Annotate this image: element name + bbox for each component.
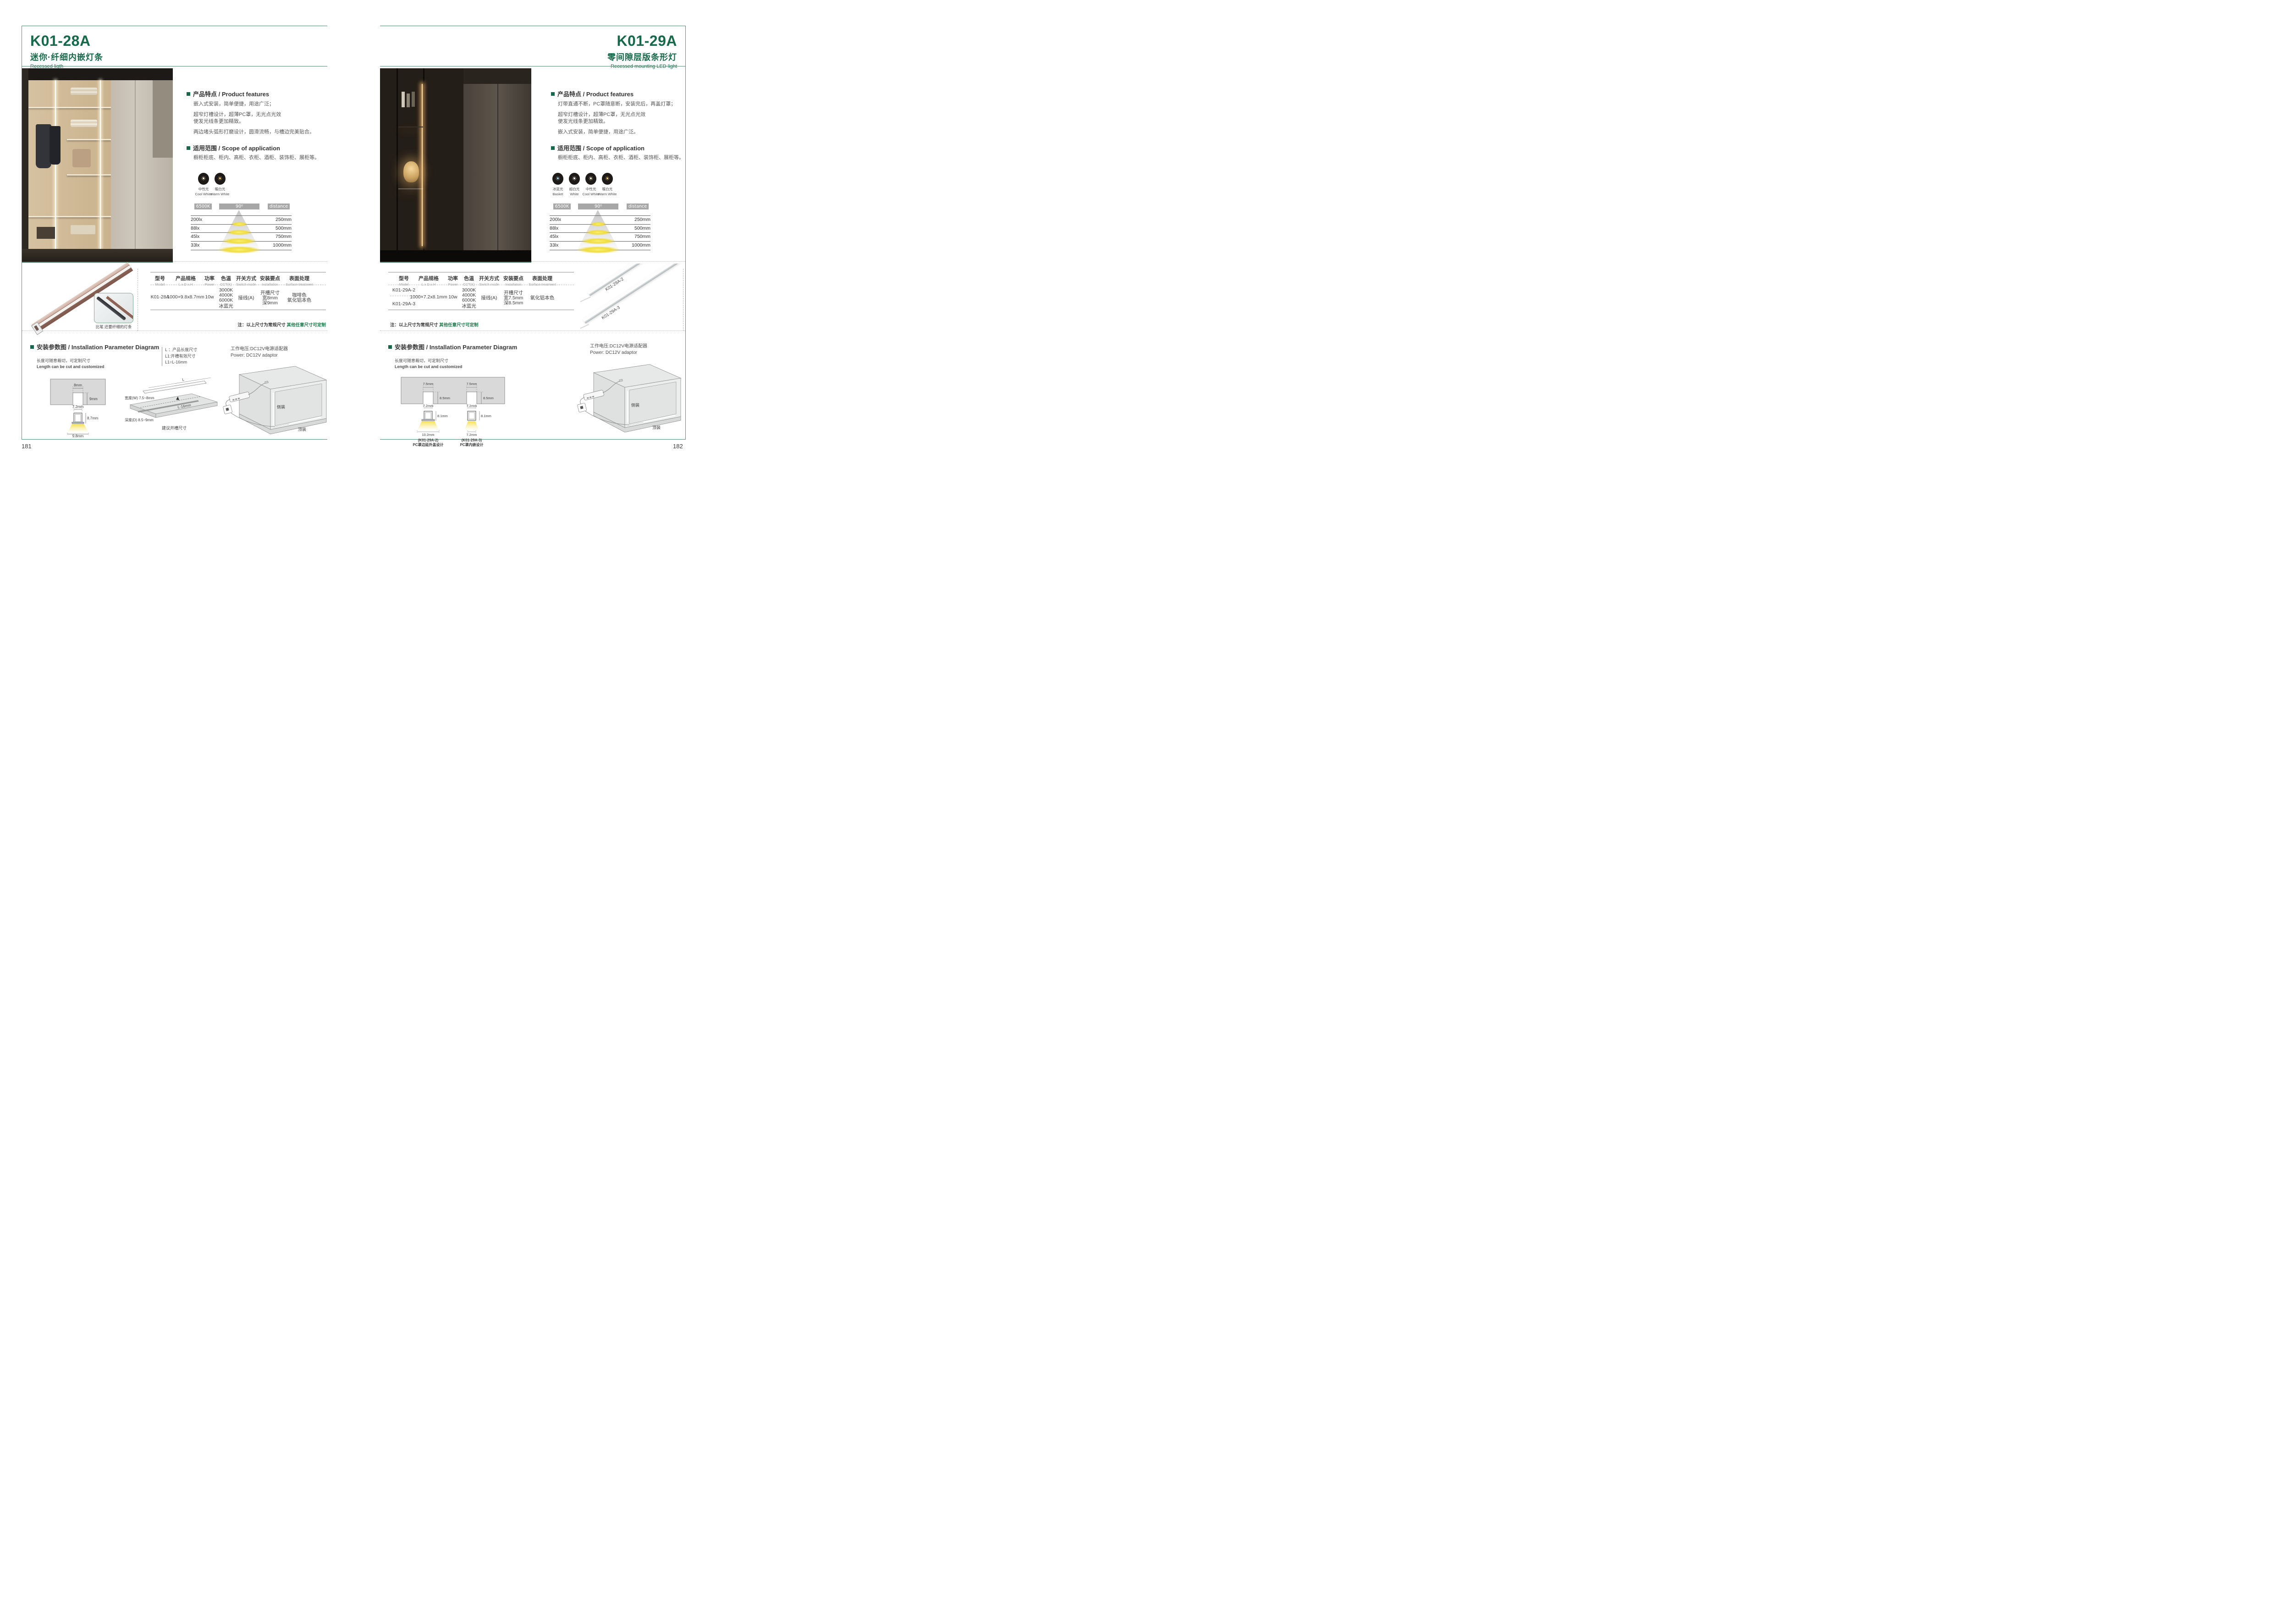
dashed-divider [138, 269, 138, 331]
feature-line: 使发光线条更加精致。 [193, 118, 244, 125]
page-number: 181 [22, 443, 32, 450]
lux-value: 45lx [550, 234, 558, 239]
svg-text:顶装: 顶装 [298, 427, 306, 432]
svg-text:顶装: 顶装 [652, 425, 661, 430]
cell-size: 1000×9.8x8.7mm [167, 294, 204, 300]
cct-bar: 6500K [553, 204, 571, 209]
storage-box [37, 227, 55, 239]
feature-line: 两边堵头弧形打磨设计，圆滑流畅，与槽边完美贴合。 [193, 129, 314, 136]
catalog-spread: K01-28A 迷你·纤细内嵌灯条 Recessed ligth [0, 0, 707, 461]
svg-text:L: L [182, 377, 185, 382]
led-strip-glow [422, 84, 423, 246]
product-subtitle-cn: 零间隙层版条形灯 [607, 51, 677, 63]
cell-model: K01-29A-2 [392, 287, 415, 293]
panel-seam [497, 68, 498, 262]
square-bullet-icon [551, 146, 555, 150]
length-note-en: Length can be cut and customized [37, 364, 105, 370]
cell-power: 10w [205, 294, 214, 300]
svg-text:建议开槽尺寸: 建议开槽尺寸 [162, 425, 187, 430]
dashed-divider [683, 269, 683, 331]
hanging-coat [50, 126, 61, 165]
svg-text:7.2mm: 7.2mm [467, 404, 477, 408]
folded-textile [71, 225, 95, 234]
svg-text:9.8mm: 9.8mm [72, 434, 84, 438]
svg-text:10.2mm: 10.2mm [422, 433, 434, 437]
lux-value: 200lx [191, 217, 202, 222]
cross-section-diagram-double: 7.5mm 8.5mm 7.2mm 8.1mm 10.2mm (K01-29A-… [396, 371, 510, 449]
svg-text:7.2mm: 7.2mm [72, 405, 84, 409]
photo-open-shelving [380, 68, 463, 262]
power-note-cn: 工作电压:DC12V电源适配器 [231, 346, 288, 353]
sun-icon: ☀ [605, 176, 610, 182]
groove-board-diagram: L L-16mm 宽度(W) 7.5~8mm 深度(D) 8.5~9mm 建议开… [124, 375, 225, 437]
shelf [28, 216, 111, 217]
power-note-cn: 工作电压:DC12V电源适配器 [590, 343, 647, 350]
photo-floor [22, 249, 173, 262]
svg-text:深度(D) 8.5~9mm: 深度(D) 8.5~9mm [125, 418, 154, 422]
light-distribution-chart: 6500K 90⁰ distance 200lx 88lx 45lx 33lx … [190, 204, 292, 258]
strip-wire [580, 297, 591, 303]
table-bottom-rule [150, 309, 326, 310]
product-photo-wardrobe [22, 68, 173, 263]
light-color-icon: ☀ [215, 173, 226, 185]
cell-surface: 氧化铝本色 [287, 297, 312, 303]
light-color-label: 暖白光Warm White [596, 187, 618, 197]
custom-size-note: 注：以上尺寸为常规尺寸 其他任意尺寸可定制 [237, 321, 326, 328]
scope-heading: 适用范围 / Scope of application [551, 143, 645, 152]
cct-bar: 6500K [194, 204, 212, 209]
light-pool [590, 222, 606, 226]
svg-text:8.5mm: 8.5mm [440, 396, 450, 400]
svg-text:8.1mm: 8.1mm [437, 414, 448, 418]
light-pool [585, 230, 611, 235]
photo-closed-panels [463, 68, 532, 262]
light-pool [222, 238, 257, 244]
lux-value: 88lx [550, 226, 558, 231]
svg-text:(K01-29A-3): (K01-29A-3) [462, 438, 482, 442]
hanging-suit [36, 124, 51, 168]
spec-table: 型号Model 产品规格L x D x H 功率Power 色温CCT(K) 开… [388, 270, 574, 334]
distance-value: 750mm [634, 234, 650, 239]
distance-value: 1000mm [632, 242, 650, 248]
sun-icon: ☀ [201, 176, 206, 182]
cell-install: 深9mm [262, 299, 278, 306]
chart-line [191, 215, 292, 216]
square-bullet-icon [388, 345, 392, 349]
svg-text:7.2mm: 7.2mm [467, 433, 477, 437]
cell-power: 10w [448, 294, 457, 300]
cabinet-mount-diagram: 侧装 顶装 [576, 355, 686, 437]
table-header-rule [388, 285, 574, 285]
scope-heading: 适用范围 / Scope of application [187, 143, 280, 152]
lux-value: 45lx [191, 234, 199, 239]
cell-switch: 接线(A) [481, 294, 497, 301]
distance-value: 250mm [634, 217, 650, 222]
installation-heading: 安装参数图 / Installation Parameter Diagram [388, 342, 517, 351]
scope-text: 橱柜柜底、柜内、高柜、衣柜、酒柜、装饰柜、展柜等。 [558, 154, 684, 161]
pen-comparison-inset [94, 293, 133, 323]
svg-text:8.7mm: 8.7mm [87, 416, 99, 420]
book [402, 92, 405, 107]
page-k01-28a: K01-28A 迷你·纤细内嵌灯条 Recessed ligth [22, 26, 327, 440]
product-code: K01-29A [607, 33, 677, 48]
top-band [463, 68, 532, 84]
light-color-icon: ☀ [198, 173, 209, 185]
cabinet-mount-diagram: 侧装 顶装 [222, 357, 332, 439]
cell-cct: 冰蓝光 [462, 303, 476, 309]
book [407, 94, 410, 107]
photo-floor [380, 250, 531, 262]
cell-model: K01-29A-3 [392, 301, 415, 307]
svg-text:8mm: 8mm [74, 383, 82, 387]
square-bullet-icon [187, 146, 190, 150]
section-divider-dotted [531, 261, 685, 262]
square-bullet-icon [30, 345, 34, 349]
lux-value: 200lx [550, 217, 561, 222]
features-heading: 产品特点 / Product features [551, 89, 634, 98]
light-color-label: 暖白光Warm White [209, 187, 231, 197]
feature-line: 灯带直通不断，PC罩随意断，安装完后，再盖灯罩； [558, 101, 676, 108]
table-top-rule [388, 272, 574, 273]
spec-table: 型号Model 产品规格L x D x H 功率Power 色温CCT(K) 开… [150, 270, 326, 334]
book [412, 92, 415, 107]
cell-surface: 氧化铝本色 [530, 294, 555, 301]
cell-cct: 冰蓝光 [219, 303, 233, 309]
features-heading: 产品特点 / Product features [187, 89, 269, 98]
svg-text:(K01-29A-2): (K01-29A-2) [418, 438, 439, 442]
distance-value: 500mm [634, 226, 650, 231]
section-divider-dotted [380, 330, 685, 331]
light-pool [218, 246, 261, 253]
svg-text:7.5mm: 7.5mm [467, 382, 477, 386]
page-header: K01-28A 迷你·纤细内嵌灯条 Recessed ligth [30, 33, 103, 69]
chart-line [550, 215, 650, 216]
cell-size: 1000×7.2x8.1mm [410, 294, 447, 300]
distance-bar: distance [268, 204, 290, 209]
page-header: K01-29A 零间隙层版条形灯 Recessed mounting LED l… [607, 33, 677, 69]
length-note-cn: 长度可随意裁切，可定制尺寸 [395, 358, 448, 364]
divider [397, 68, 398, 262]
beam-angle-bar: 90⁰ [578, 204, 618, 209]
table-bottom-rule [388, 309, 574, 310]
square-bullet-icon [187, 92, 190, 96]
page-k01-29a: K01-29A 零间隙层版条形灯 Recessed mounting LED l… [380, 26, 686, 440]
svg-text:PC罩边延外盖设计: PC罩边延外盖设计 [413, 442, 443, 447]
led-strip-glow [55, 80, 56, 249]
svg-text:8.1mm: 8.1mm [481, 414, 491, 418]
distance-value: 500mm [275, 226, 292, 231]
square-bullet-icon [551, 92, 555, 96]
cross-section-diagram: 8mm 9mm 7.2mm 8.7mm 9.8mm [40, 373, 116, 438]
product-photo-cabinet [380, 68, 531, 263]
scope-text: 橱柜柜底、柜内、高柜、衣柜、酒柜、装饰柜、展柜等。 [193, 154, 320, 161]
svg-text:7.2mm: 7.2mm [423, 404, 434, 408]
light-distribution-chart: 6500K 90⁰ distance 200lx 88lx 45lx 33lx … [549, 204, 651, 258]
led-strip-glow [100, 80, 101, 249]
table-top-rule [150, 272, 326, 273]
divider [423, 68, 424, 262]
svg-text:宽度(W) 7.5~8mm: 宽度(W) 7.5~8mm [125, 396, 154, 400]
light-pool [577, 246, 620, 253]
light-color-icon: ☀ [569, 173, 580, 185]
header-divider [22, 66, 327, 66]
sun-icon: ☀ [572, 176, 577, 182]
distance-value: 1000mm [273, 242, 292, 248]
distance-value: 250mm [275, 217, 292, 222]
page-number: 182 [673, 443, 683, 450]
product-subtitle-cn: 迷你·纤细内嵌灯条 [30, 51, 103, 63]
photo-ceiling [22, 68, 173, 80]
photo-wood-unit [28, 80, 111, 249]
installation-heading: 安装参数图 / Installation Parameter Diagram [30, 342, 159, 351]
length-note-en: Length can be cut and customized [395, 364, 463, 370]
strips-photo: K01-29A-2 K01-29A-3 [580, 264, 684, 331]
svg-text:侧装: 侧装 [277, 404, 285, 409]
sun-icon: ☀ [555, 176, 561, 182]
folded-towels [71, 120, 97, 127]
bag [72, 149, 91, 167]
cell-switch: 接线(A) [238, 294, 254, 301]
table-header-rule [150, 285, 326, 285]
photo-sliding-door [111, 80, 173, 249]
lux-value: 88lx [191, 226, 199, 231]
header-divider [380, 66, 685, 66]
strip-wire [580, 324, 589, 330]
light-pool [231, 222, 248, 226]
light-color-icon: ☀ [585, 173, 596, 185]
shelf [28, 107, 111, 108]
custom-size-note: 注：以上尺寸为常规尺寸 其他任意尺寸可定制 [390, 321, 479, 328]
sun-icon: ☀ [588, 176, 594, 182]
feature-line: 超窄灯槽设计，超薄PC罩，无光点光效 [558, 111, 645, 118]
svg-text:9mm: 9mm [89, 397, 98, 401]
length-legend: L ：产品长度尺寸 L1:开槽有效尺寸 L1=L-16mm [162, 347, 197, 366]
length-note-cn: 长度可随意裁切，可定制尺寸 [37, 358, 90, 364]
light-pool [581, 238, 616, 244]
svg-text:7.5mm: 7.5mm [423, 382, 434, 386]
light-color-icon: ☀ [602, 173, 613, 185]
door-seam [135, 80, 136, 249]
lux-value: 33lx [191, 242, 199, 248]
shelf [398, 127, 423, 127]
feature-line: 使发光线条更加精致。 [558, 118, 608, 125]
distance-value: 750mm [275, 234, 292, 239]
glowing-vase [403, 161, 419, 182]
feature-line: 超窄灯槽设计，超薄PC罩，无光点光效 [193, 111, 281, 118]
led-strip-product [583, 264, 682, 324]
svg-text:侧装: 侧装 [631, 402, 639, 407]
photo-caption: 比笔 还要纤细的灯条 [81, 324, 147, 330]
door-panel-dark [153, 80, 173, 158]
feature-line: 嵌入式安装，简单便捷，用途广泛； [193, 101, 274, 108]
shelf [67, 174, 111, 176]
distance-bar: distance [627, 204, 649, 209]
svg-text:8.5mm: 8.5mm [483, 396, 494, 400]
product-code: K01-28A [30, 33, 103, 48]
lux-value: 33lx [550, 242, 558, 248]
light-pool [226, 230, 252, 235]
section-divider-dotted [173, 261, 327, 262]
photo-side-wall [22, 68, 28, 262]
section-divider-dotted [22, 330, 327, 331]
cell-install: 深8.5mm [504, 299, 523, 306]
shelf [67, 139, 111, 140]
folded-towels [71, 88, 97, 95]
svg-text:PC罩内嵌设计: PC罩内嵌设计 [460, 442, 483, 447]
light-color-icon: ☀ [552, 173, 563, 185]
sun-icon: ☀ [217, 176, 223, 182]
glass-shelf [398, 188, 423, 189]
product-subtitle-en: Recessed mounting LED light [607, 64, 677, 69]
feature-line: 嵌入式安装，简单便捷，用途广泛。 [558, 129, 639, 136]
beam-angle-bar: 90⁰ [219, 204, 259, 209]
